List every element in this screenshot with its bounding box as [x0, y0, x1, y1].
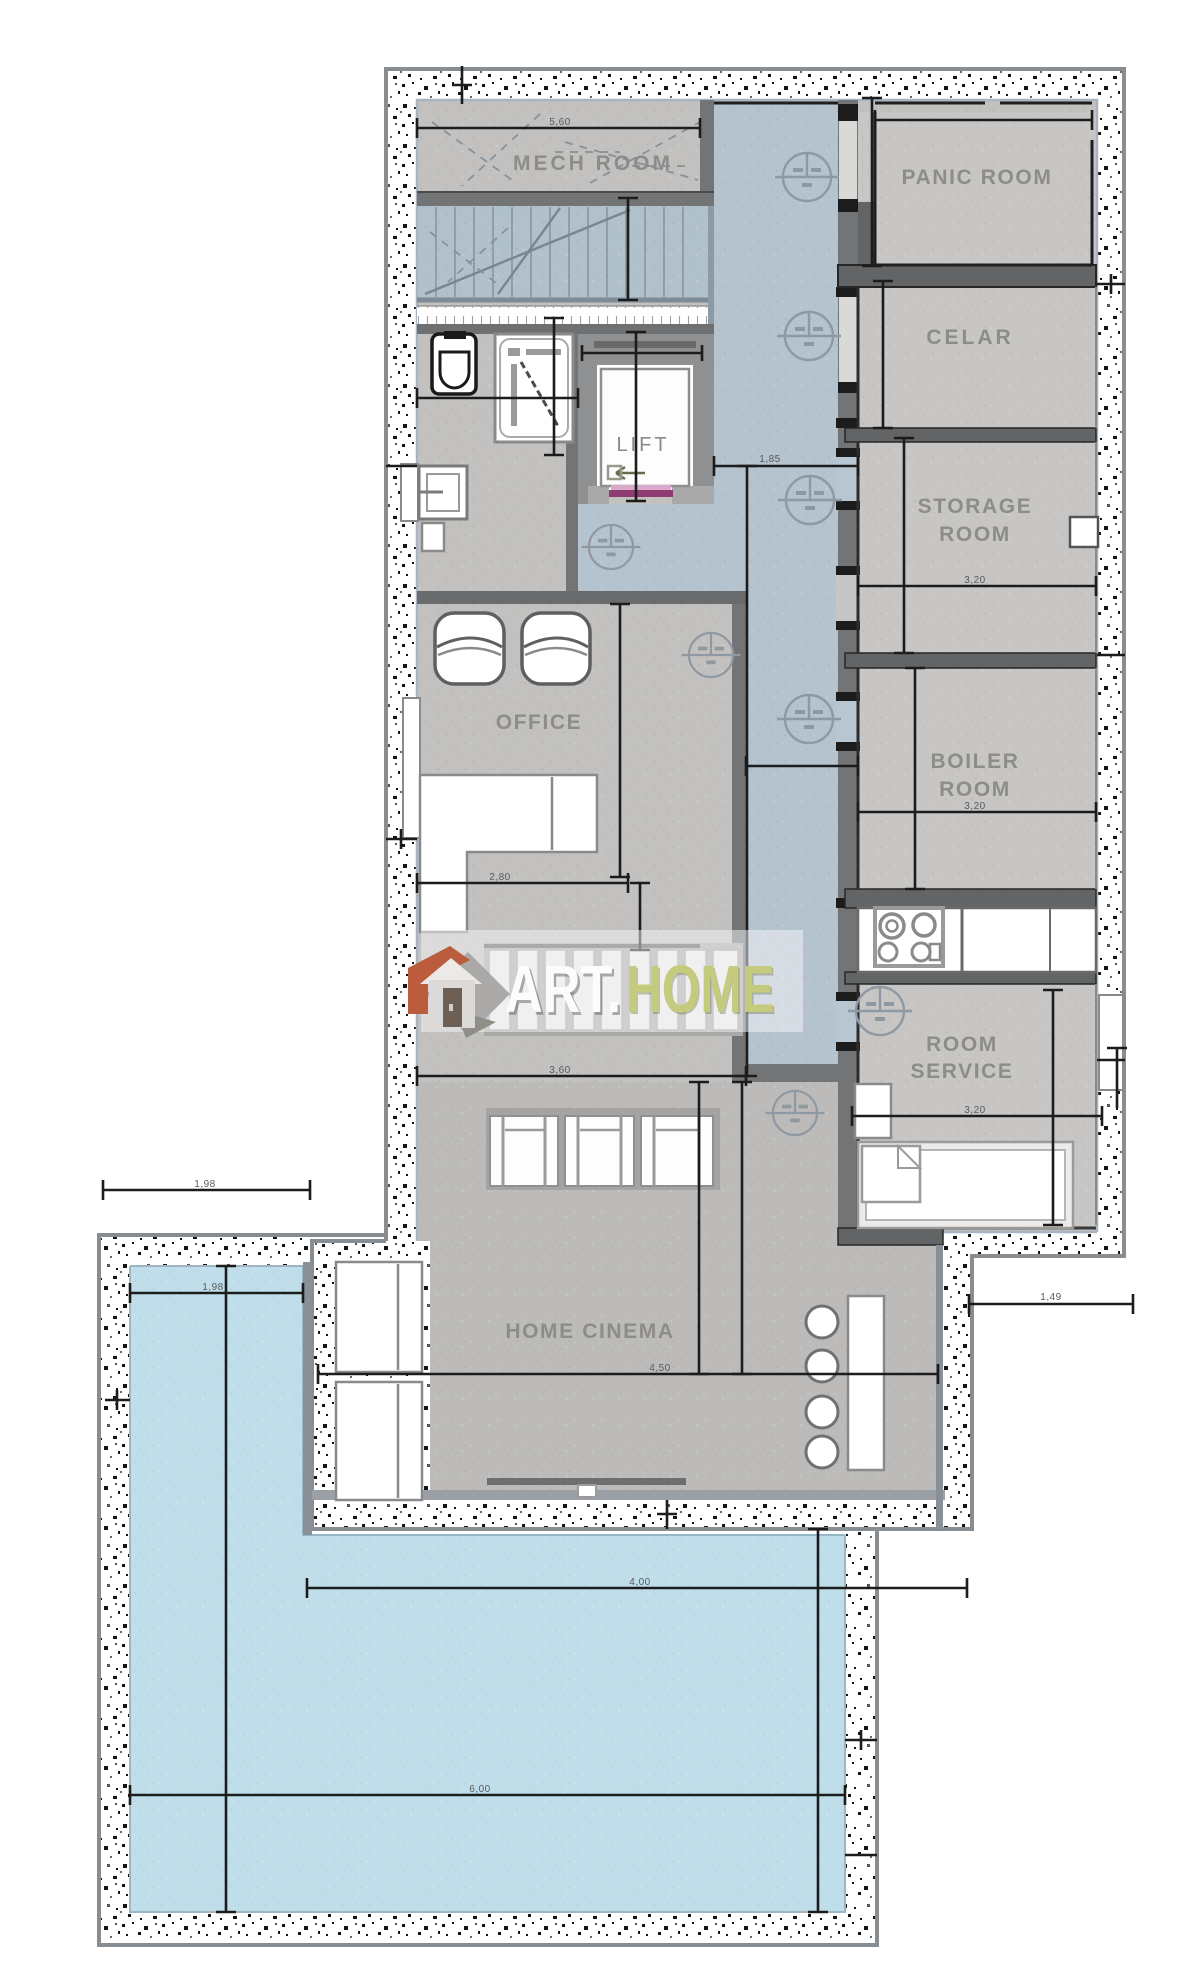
svg-text:SERVICE: SERVICE	[910, 1060, 1013, 1083]
svg-text:ROOM: ROOM	[926, 1033, 998, 1056]
svg-text:2,80: 2,80	[489, 872, 510, 883]
svg-text:HOME: HOME	[626, 953, 775, 1027]
svg-text:ART.: ART.	[505, 952, 621, 1027]
svg-text:1,85: 1,85	[759, 454, 780, 465]
svg-text:CELAR: CELAR	[926, 326, 1013, 349]
svg-text:6,00: 6,00	[469, 1784, 490, 1795]
svg-text:1,49: 1,49	[1040, 1292, 1061, 1303]
svg-text:4,50: 4,50	[649, 1363, 670, 1374]
svg-text:5,60: 5,60	[549, 117, 570, 128]
svg-text:OFFICE: OFFICE	[496, 711, 583, 734]
svg-text:3,20: 3,20	[964, 801, 985, 812]
svg-text:1,98: 1,98	[194, 1179, 215, 1190]
svg-text:3,20: 3,20	[964, 575, 985, 586]
svg-text:ROOM: ROOM	[939, 778, 1011, 801]
svg-text:3,60: 3,60	[549, 1065, 570, 1076]
svg-text:LIFT: LIFT	[616, 434, 669, 456]
svg-text:4,00: 4,00	[629, 1577, 650, 1588]
svg-text:HOME CINEMA: HOME CINEMA	[505, 1320, 674, 1343]
svg-text:PANIC ROOM: PANIC ROOM	[902, 166, 1053, 189]
svg-text:1,98: 1,98	[202, 1282, 223, 1293]
svg-text:STORAGE: STORAGE	[918, 495, 1033, 518]
svg-text:3,20: 3,20	[964, 1105, 985, 1116]
svg-text:MECH ROOM: MECH ROOM	[513, 152, 673, 175]
svg-text:ROOM: ROOM	[939, 523, 1011, 546]
svg-text:BOILER: BOILER	[931, 750, 1020, 773]
